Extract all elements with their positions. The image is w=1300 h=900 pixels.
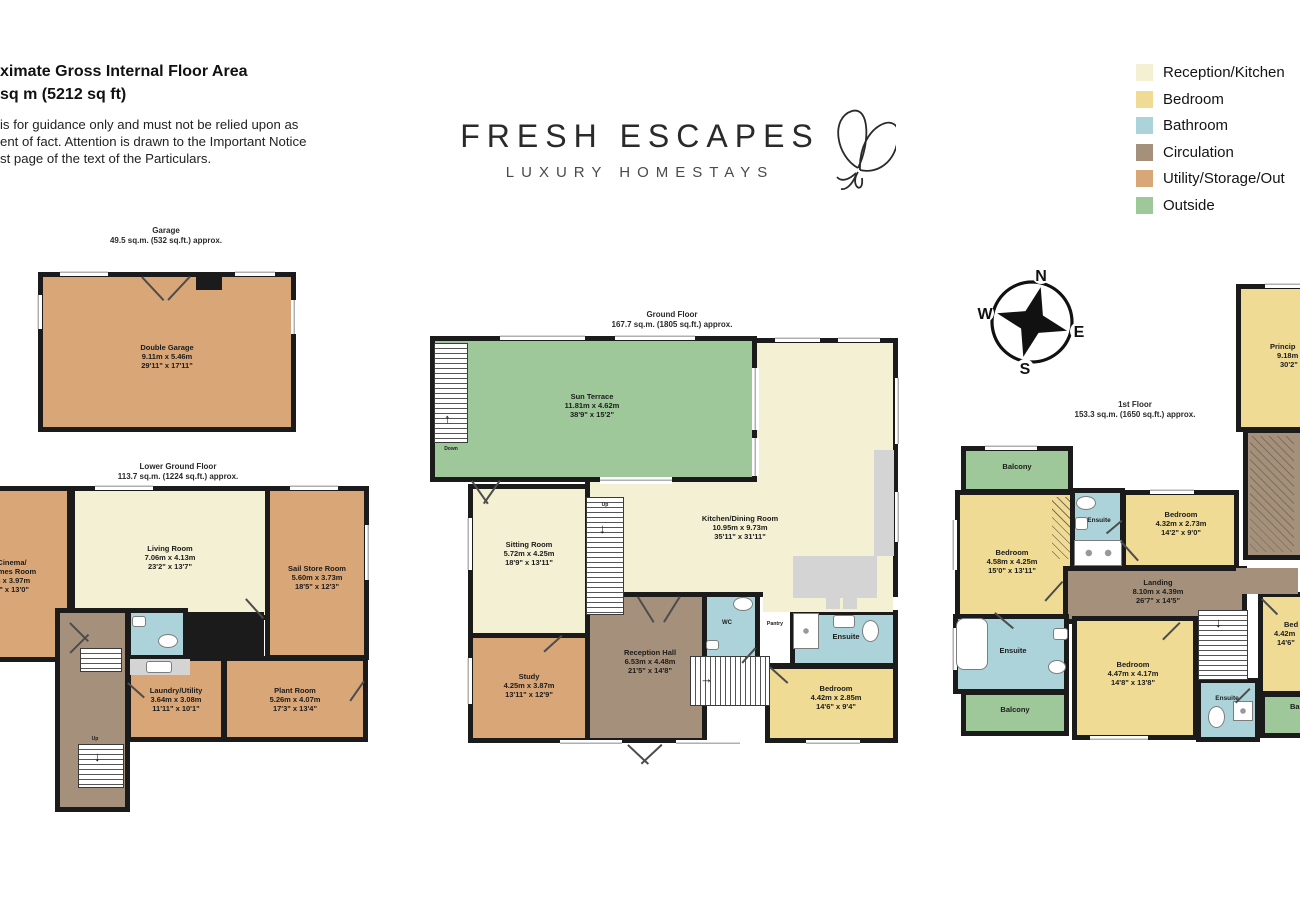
room-label: Landing8.10m x 4.39m26'7" x 14'5" xyxy=(1133,578,1184,605)
legend-item-5: Outside xyxy=(1136,197,1285,214)
room-label: Bedroom4.47m x 4.17m14'8" x 13'8" xyxy=(1108,660,1159,687)
legend-item-2: Bathroom xyxy=(1136,117,1285,134)
tiny-label: WC xyxy=(722,620,732,626)
window xyxy=(1090,736,1148,743)
window xyxy=(1150,487,1194,494)
window xyxy=(676,740,740,747)
room-label: Bedroom4.42m x 2.85m14'6" x 9'4" xyxy=(811,684,862,711)
fixture-toilet xyxy=(862,620,879,642)
room-label: Ensuite xyxy=(832,632,859,641)
window xyxy=(806,740,860,747)
legend-swatch xyxy=(1136,91,1153,108)
room-label: Laundry/Utility3.64m x 3.08m11'11" x 10'… xyxy=(150,686,203,713)
legend-item-0: Reception/Kitchen xyxy=(1136,64,1285,81)
window xyxy=(838,335,880,342)
brand-subtitle: LUXURY HOMESTAYS xyxy=(390,164,890,181)
legend-label: Utility/Storage/Out xyxy=(1163,170,1285,187)
tiny-label: 4.42m xyxy=(1274,629,1295,638)
tiny-label: Bed xyxy=(1284,620,1298,629)
room-label: Sail Store Room5.60m x 3.73m18'5" x 12'3… xyxy=(288,564,346,591)
wardrobe-hatch xyxy=(1250,436,1294,552)
kitchen-unit xyxy=(843,598,857,609)
window xyxy=(35,295,42,329)
fixture-bath xyxy=(956,618,988,670)
stairs-arrow-icon: ↓ xyxy=(599,522,606,535)
fixture-vanity xyxy=(1074,540,1122,566)
window xyxy=(615,333,695,340)
floorplan-page: ximate Gross Internal Floor Area sq m (5… xyxy=(0,0,1300,900)
window xyxy=(985,443,1037,450)
room-label: Kitchen/Dining Room10.95m x 9.73m35'11" … xyxy=(702,514,778,541)
window xyxy=(500,333,585,340)
stairs-arrow-icon: ↑ xyxy=(444,412,451,425)
legend-swatch xyxy=(1136,144,1153,161)
room-label: Sitting Room5.72m x 4.25m18'9" x 13'11" xyxy=(504,540,555,567)
disclaimer-text: is for guidance only and must not be rel… xyxy=(0,116,306,167)
tiny-label: Pantry xyxy=(767,621,783,627)
tiny-label: 9.18m xyxy=(1277,351,1298,360)
fixture-toilet xyxy=(733,597,753,611)
wall-segment xyxy=(184,612,264,656)
floor-title: Ground Floor167.7 sq.m. (1805 sq.ft.) ap… xyxy=(612,310,733,330)
floor-title: Garage49.5 sq.m. (532 sq.ft.) approx. xyxy=(110,226,222,246)
stairs xyxy=(1198,610,1248,680)
brand-title: FRESH ESCAPES xyxy=(390,118,890,155)
window xyxy=(1265,281,1300,288)
room-balcony-right xyxy=(1260,692,1300,738)
room-label: Reception Hall6.53m x 4.48m21'5" x 14'8" xyxy=(624,648,676,675)
tiny-label: Princip xyxy=(1270,342,1295,351)
stairs-arrow-icon: ↓ xyxy=(1215,616,1222,629)
floor-area-total: sq m (5212 sq ft) xyxy=(0,83,306,106)
door xyxy=(641,744,663,764)
room-label: Sun Terrace11.81m x 4.62m38'9" x 15'2" xyxy=(565,392,620,419)
butterfly-icon xyxy=(818,96,896,204)
window xyxy=(600,477,672,484)
svg-text:N: N xyxy=(1035,268,1047,285)
fixture-toilet xyxy=(1048,660,1066,674)
patch xyxy=(1236,568,1298,594)
window xyxy=(465,658,472,704)
fixture-toilet xyxy=(1076,496,1096,510)
window xyxy=(752,368,759,430)
fixture-shower xyxy=(1233,701,1253,721)
window xyxy=(365,525,372,580)
room-label: Ensuite xyxy=(999,646,1026,655)
window xyxy=(895,378,902,444)
compass-icon: N W E S xyxy=(975,258,1093,378)
kitchen-unit xyxy=(826,598,840,609)
floor-title: 1st Floor153.3 sq.m. (1650 sq.ft.) appro… xyxy=(1075,400,1196,420)
room-label: Living Room7.06m x 4.13m23'2" x 13'7" xyxy=(145,544,196,571)
window xyxy=(290,483,338,490)
floor-title: Lower Ground Floor113.7 sq.m. (1224 sq.f… xyxy=(118,462,239,482)
fixture-sink xyxy=(132,616,146,627)
legend-item-4: Utility/Storage/Out xyxy=(1136,170,1285,187)
legend-swatch xyxy=(1136,170,1153,187)
room-label: Ensuite xyxy=(1087,516,1110,525)
window xyxy=(95,483,153,490)
room-label: Balcony xyxy=(1000,705,1029,714)
stairs xyxy=(586,497,624,615)
svg-text:E: E xyxy=(1074,324,1085,341)
window xyxy=(60,269,108,276)
tiny-label: Up xyxy=(92,736,99,742)
svg-text:W: W xyxy=(977,306,993,323)
wall-segment xyxy=(196,272,222,290)
kitchen-unit xyxy=(793,556,877,598)
room-label: Plant Room5.26m x 4.07m17'3" x 13'4" xyxy=(270,686,321,713)
fixture-shower xyxy=(793,613,819,649)
room-label: Bedroom4.58m x 4.25m15'0" x 13'11" xyxy=(987,548,1038,575)
room-label: Study4.25m x 3.87m13'11" x 12'9" xyxy=(504,672,555,699)
floor-area-title: ximate Gross Internal Floor Area xyxy=(0,60,306,83)
svg-text:S: S xyxy=(1020,361,1031,378)
window xyxy=(560,740,622,747)
tiny-label: Ba xyxy=(1290,702,1300,711)
tiny-label: 30'2" xyxy=(1280,360,1298,369)
legend-label: Reception/Kitchen xyxy=(1163,64,1285,81)
tiny-label: 14'6" xyxy=(1277,638,1295,647)
wardrobe-hatch xyxy=(1052,497,1070,559)
stairs-arrow-icon: → xyxy=(700,672,713,685)
window xyxy=(895,492,902,542)
legend-label: Outside xyxy=(1163,197,1215,214)
door xyxy=(627,744,649,764)
fixture-sink xyxy=(706,640,719,650)
legend-item-3: Circulation xyxy=(1136,144,1285,161)
legend: Reception/KitchenBedroomBathroomCirculat… xyxy=(1136,64,1285,223)
stairs xyxy=(78,744,124,788)
room-label: Cinema/Games Roomm x 3.97m5" x 13'0" xyxy=(0,558,36,594)
floor-area-header: ximate Gross Internal Floor Area sq m (5… xyxy=(0,60,306,167)
legend-label: Bedroom xyxy=(1163,91,1224,108)
window xyxy=(291,300,298,334)
stairs xyxy=(80,648,122,672)
fixture-sink xyxy=(146,661,172,673)
window xyxy=(752,438,759,476)
fixture-toilet xyxy=(158,634,178,648)
room-label: Bedroom4.32m x 2.73m14'2" x 9'0" xyxy=(1156,510,1207,537)
fixture-sink xyxy=(1053,628,1068,640)
legend-swatch xyxy=(1136,197,1153,214)
legend-item-1: Bedroom xyxy=(1136,91,1285,108)
fixture-sink xyxy=(1075,517,1088,530)
room-label: Balcony xyxy=(1002,462,1031,471)
room-label: Double Garage9.11m x 5.46m29'11" x 17'11… xyxy=(140,343,193,370)
stairs xyxy=(434,343,468,443)
window xyxy=(465,518,472,570)
window xyxy=(950,520,957,570)
window xyxy=(775,335,820,342)
legend-label: Circulation xyxy=(1163,144,1234,161)
legend-swatch xyxy=(1136,64,1153,81)
stairs-arrow-icon: ↓ xyxy=(94,750,101,763)
room-label: Ensuite xyxy=(1215,694,1238,703)
patch xyxy=(757,472,893,484)
kitchen-unit xyxy=(874,450,894,556)
tiny-label: Down xyxy=(444,446,458,452)
window xyxy=(235,269,275,276)
fixture-sink xyxy=(833,615,855,628)
fixture-toilet xyxy=(1208,706,1225,728)
legend-label: Bathroom xyxy=(1163,117,1228,134)
legend-swatch xyxy=(1136,117,1153,134)
tiny-label: Up xyxy=(602,502,609,508)
brand-logo: FRESH ESCAPES LUXURY HOMESTAYS xyxy=(390,118,890,181)
